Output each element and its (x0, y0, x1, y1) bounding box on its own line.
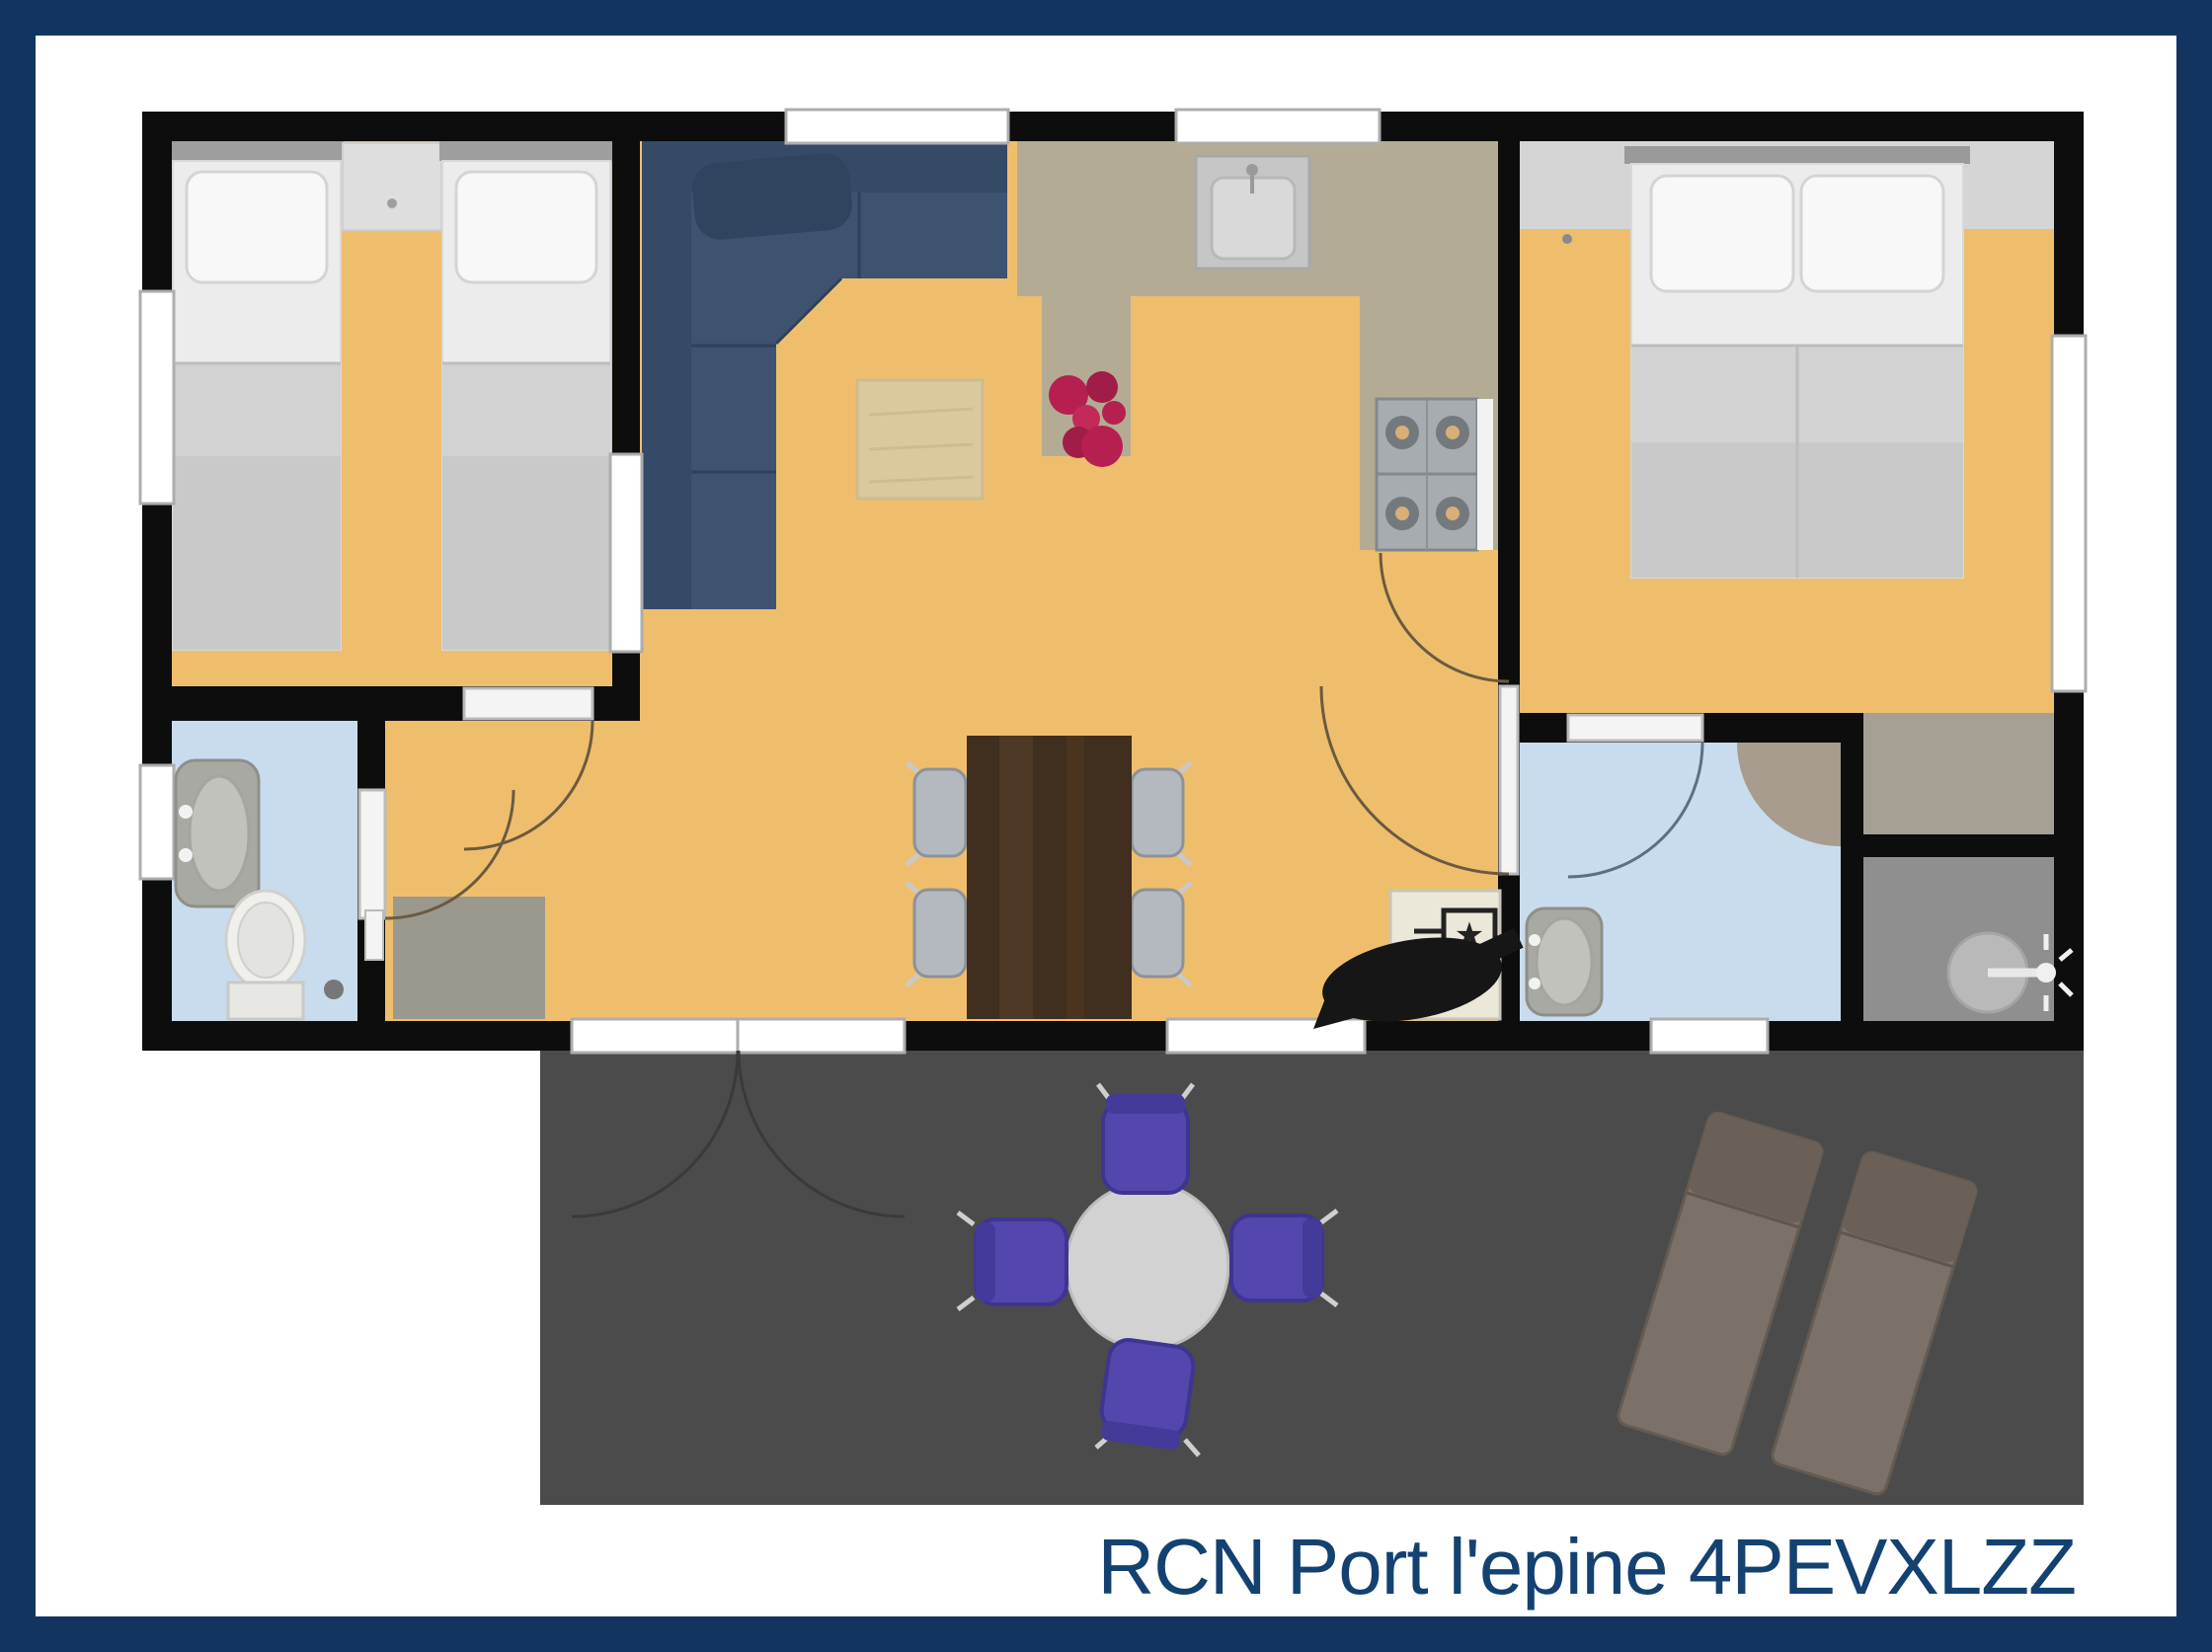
wall-bottom (142, 1021, 2084, 1051)
door-bathroom2 (1568, 715, 1702, 741)
stove-burner-center (1446, 426, 1460, 439)
door-bathroom1 (359, 790, 385, 918)
dining-chair (1132, 769, 1183, 856)
window (1176, 110, 1380, 143)
flower-bouquet (1102, 401, 1126, 425)
bathroom1-faucet-dot (179, 848, 193, 862)
dining-table-grain (999, 736, 1033, 1019)
kitchen-faucet (1246, 164, 1258, 176)
dining-table (967, 736, 1132, 1019)
floorplan-drawing: ★ (0, 0, 2212, 1652)
window (786, 110, 1008, 143)
bathroom1-faucet-dot (179, 805, 193, 819)
sofa-pillow (690, 151, 854, 242)
dining-chair (914, 769, 966, 856)
window (1651, 1019, 1768, 1053)
stove-burner-center (1395, 507, 1409, 520)
wall-left (142, 112, 172, 1051)
sofa-backrest-left (642, 141, 691, 609)
window (140, 765, 174, 879)
window (140, 291, 174, 504)
terrace-chair-back (1106, 1094, 1185, 1114)
wall-bathroom2-shower (1841, 743, 1863, 1021)
door-bedroom2 (1500, 686, 1518, 874)
bathroom1-drain-dot (324, 980, 344, 999)
bed1a-blanket-lower (173, 456, 341, 650)
dining-chair (914, 890, 966, 977)
shower-spray (2036, 963, 2056, 983)
bed2-pillow-right (1801, 176, 1943, 291)
nightstand (343, 143, 441, 230)
bed2-headboard (1624, 146, 1970, 164)
flower-bouquet (1086, 371, 1118, 403)
terrace-table (1066, 1183, 1228, 1349)
bed1b-blanket-lower (442, 456, 610, 650)
glass-partition-bedroom1 (610, 454, 642, 652)
wall-top (142, 112, 2084, 141)
flower-bouquet (1081, 426, 1123, 467)
dining-chair (1132, 890, 1183, 977)
floorplan-page: ★ RCN Port l'epine 4PEVXLZZ (0, 0, 2212, 1652)
wall-kitchen-bedroom2 (1498, 112, 1520, 1021)
terrace-chair-back (976, 1222, 995, 1301)
terrace-chair-seat (1103, 1102, 1188, 1193)
bed1b-headboard (439, 141, 613, 161)
stove-burner-center (1446, 507, 1460, 520)
wardrobe-hook-dot (1562, 234, 1572, 244)
bed1b-pillow (456, 172, 596, 282)
bed1a-pillow (187, 172, 327, 282)
bathroom2-sink-basin (1537, 918, 1592, 1005)
nightstand-knob-dot (387, 198, 397, 208)
window (2052, 336, 2086, 691)
dining-table-grain (1066, 736, 1084, 1019)
bathroom1-toilet-tank (228, 983, 303, 1019)
stove-counter-edge (1477, 399, 1493, 550)
wall-closet-bottom (1863, 834, 2054, 857)
bed1a-headboard (170, 141, 344, 161)
bed2-pillow-left (1651, 176, 1793, 291)
bathroom1-sink-basin (190, 776, 249, 891)
bathroom1-wall-box (365, 910, 383, 960)
closet-floor (1863, 713, 2054, 834)
stove-burner-center (1395, 426, 1409, 439)
window (1167, 1019, 1365, 1053)
bathroom1-toilet-seat (238, 903, 293, 978)
door-bedroom1 (464, 688, 592, 719)
terrace-chair-back (1303, 1219, 1322, 1298)
bathroom2-faucet-dot (1529, 934, 1540, 946)
bathroom2-faucet-dot (1529, 978, 1540, 989)
accommodation-title: RCN Port l'epine 4PEVXLZZ (1097, 1522, 2076, 1613)
